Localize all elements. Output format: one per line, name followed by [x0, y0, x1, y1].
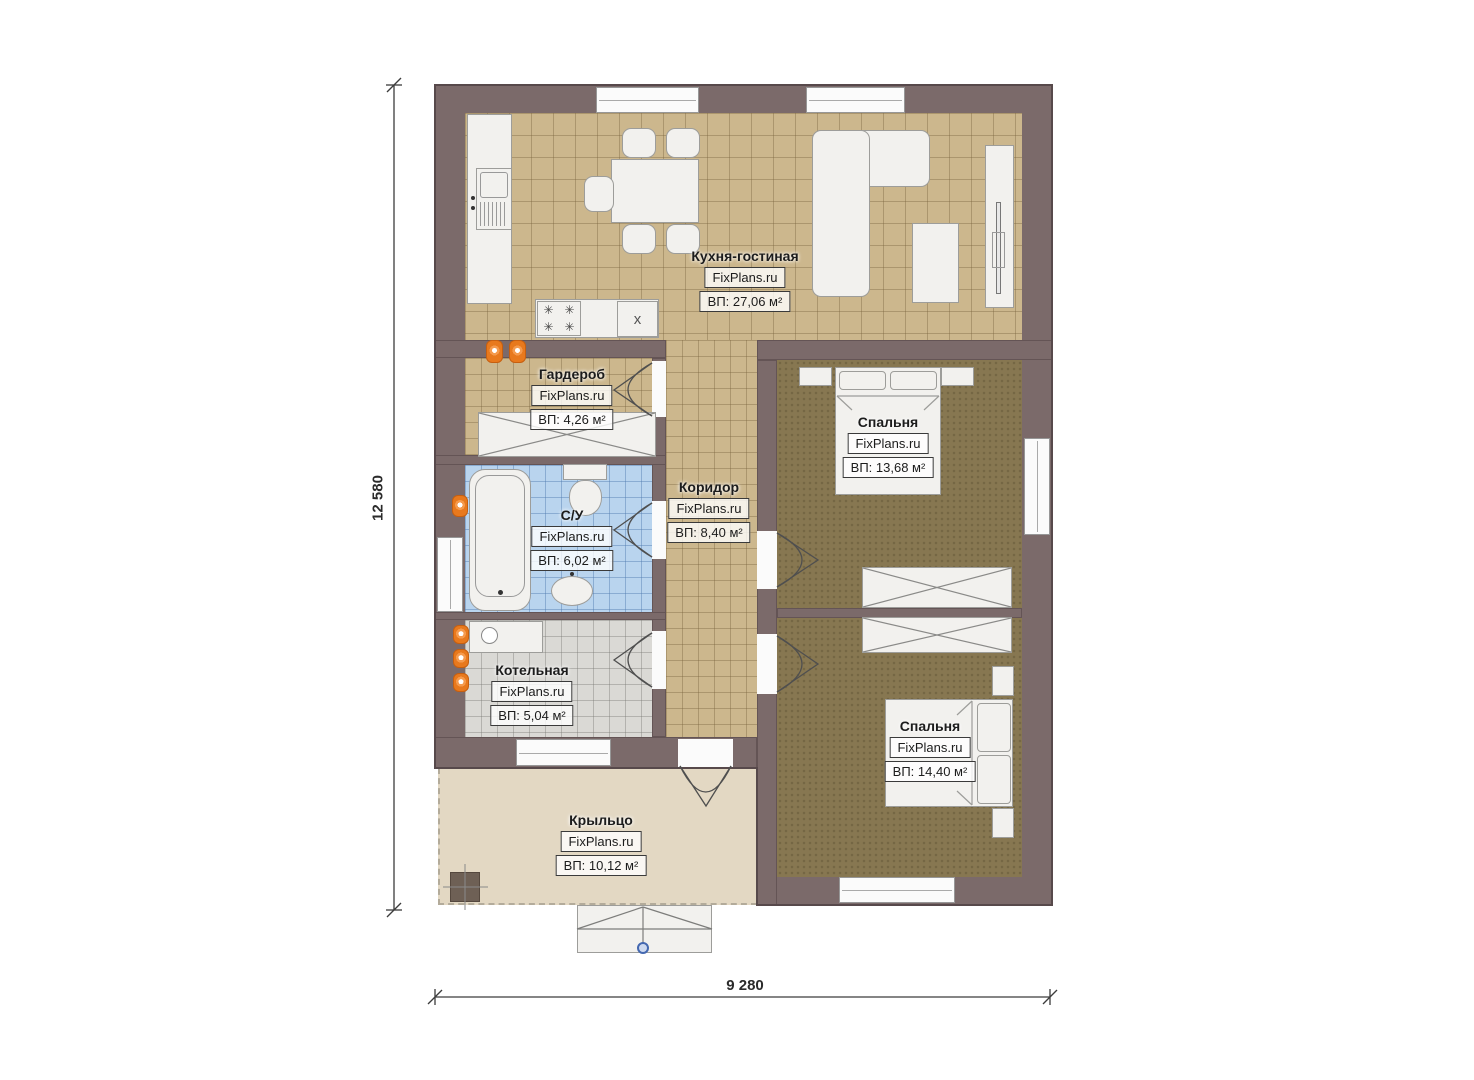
label-boiler: Котельная FixPlans.ru ВП: 5,04 м² [490, 662, 573, 726]
door-swing-bedroom1 [777, 533, 818, 587]
brand-box: FixPlans.ru [704, 267, 785, 288]
area-box: ВП: 10,12 м² [556, 855, 647, 876]
label-porch: Крыльцо FixPlans.ru ВП: 10,12 м² [556, 812, 647, 876]
room-name: Спальня [858, 414, 918, 430]
dimension-line-vertical [386, 78, 402, 917]
door-swing-wardrobe [614, 363, 652, 416]
area-box: ВП: 14,40 м² [885, 761, 976, 782]
brand-box: FixPlans.ru [491, 681, 572, 702]
brand-box: FixPlans.ru [531, 526, 612, 547]
porch-column-crosshair [443, 864, 488, 910]
area-box: ВП: 5,04 м² [490, 705, 573, 726]
door-swing-entrance [680, 766, 731, 806]
room-name: С/У [561, 507, 584, 523]
brand-box: FixPlans.ru [531, 385, 612, 406]
label-bedroom1: Спальня FixPlans.ru ВП: 13,68 м² [843, 414, 934, 478]
label-wardrobe: Гардероб FixPlans.ru ВП: 4,26 м² [530, 366, 613, 430]
dimension-label-vertical: 12 580 [370, 475, 387, 521]
door-swing-bathroom [614, 503, 652, 557]
entry-marker [638, 943, 648, 953]
room-name: Кухня-гостиная [691, 248, 798, 264]
door-swing-boiler [614, 633, 652, 687]
room-name: Котельная [495, 662, 568, 678]
steps-lines [577, 907, 712, 947]
area-box: ВП: 8,40 м² [667, 522, 750, 543]
label-kitchen-living: Кухня-гостиная FixPlans.ru ВП: 27,06 м² [691, 248, 798, 312]
brand-box: FixPlans.ru [560, 831, 641, 852]
label-corridor: Коридор FixPlans.ru ВП: 8,40 м² [667, 479, 750, 543]
label-bedroom2: Спальня FixPlans.ru ВП: 14,40 м² [885, 718, 976, 782]
area-box: ВП: 6,02 м² [530, 550, 613, 571]
brand-box: FixPlans.ru [668, 498, 749, 519]
room-name: Спальня [900, 718, 960, 734]
area-box: ВП: 13,68 м² [843, 457, 934, 478]
room-name: Гардероб [539, 366, 605, 382]
label-bathroom: С/У FixPlans.ru ВП: 6,02 м² [530, 507, 613, 571]
door-swing-bedroom2 [777, 636, 818, 692]
bed1-blanket-fold [837, 396, 939, 410]
brand-box: FixPlans.ru [847, 433, 928, 454]
floor-plan: ✳✳✳✳ x [0, 0, 1474, 1080]
area-box: ВП: 27,06 м² [700, 291, 791, 312]
area-box: ВП: 4,26 м² [530, 409, 613, 430]
room-name: Крыльцо [569, 812, 633, 828]
dimension-label-horizontal: 9 280 [726, 977, 764, 994]
brand-box: FixPlans.ru [889, 737, 970, 758]
room-name: Коридор [679, 479, 739, 495]
